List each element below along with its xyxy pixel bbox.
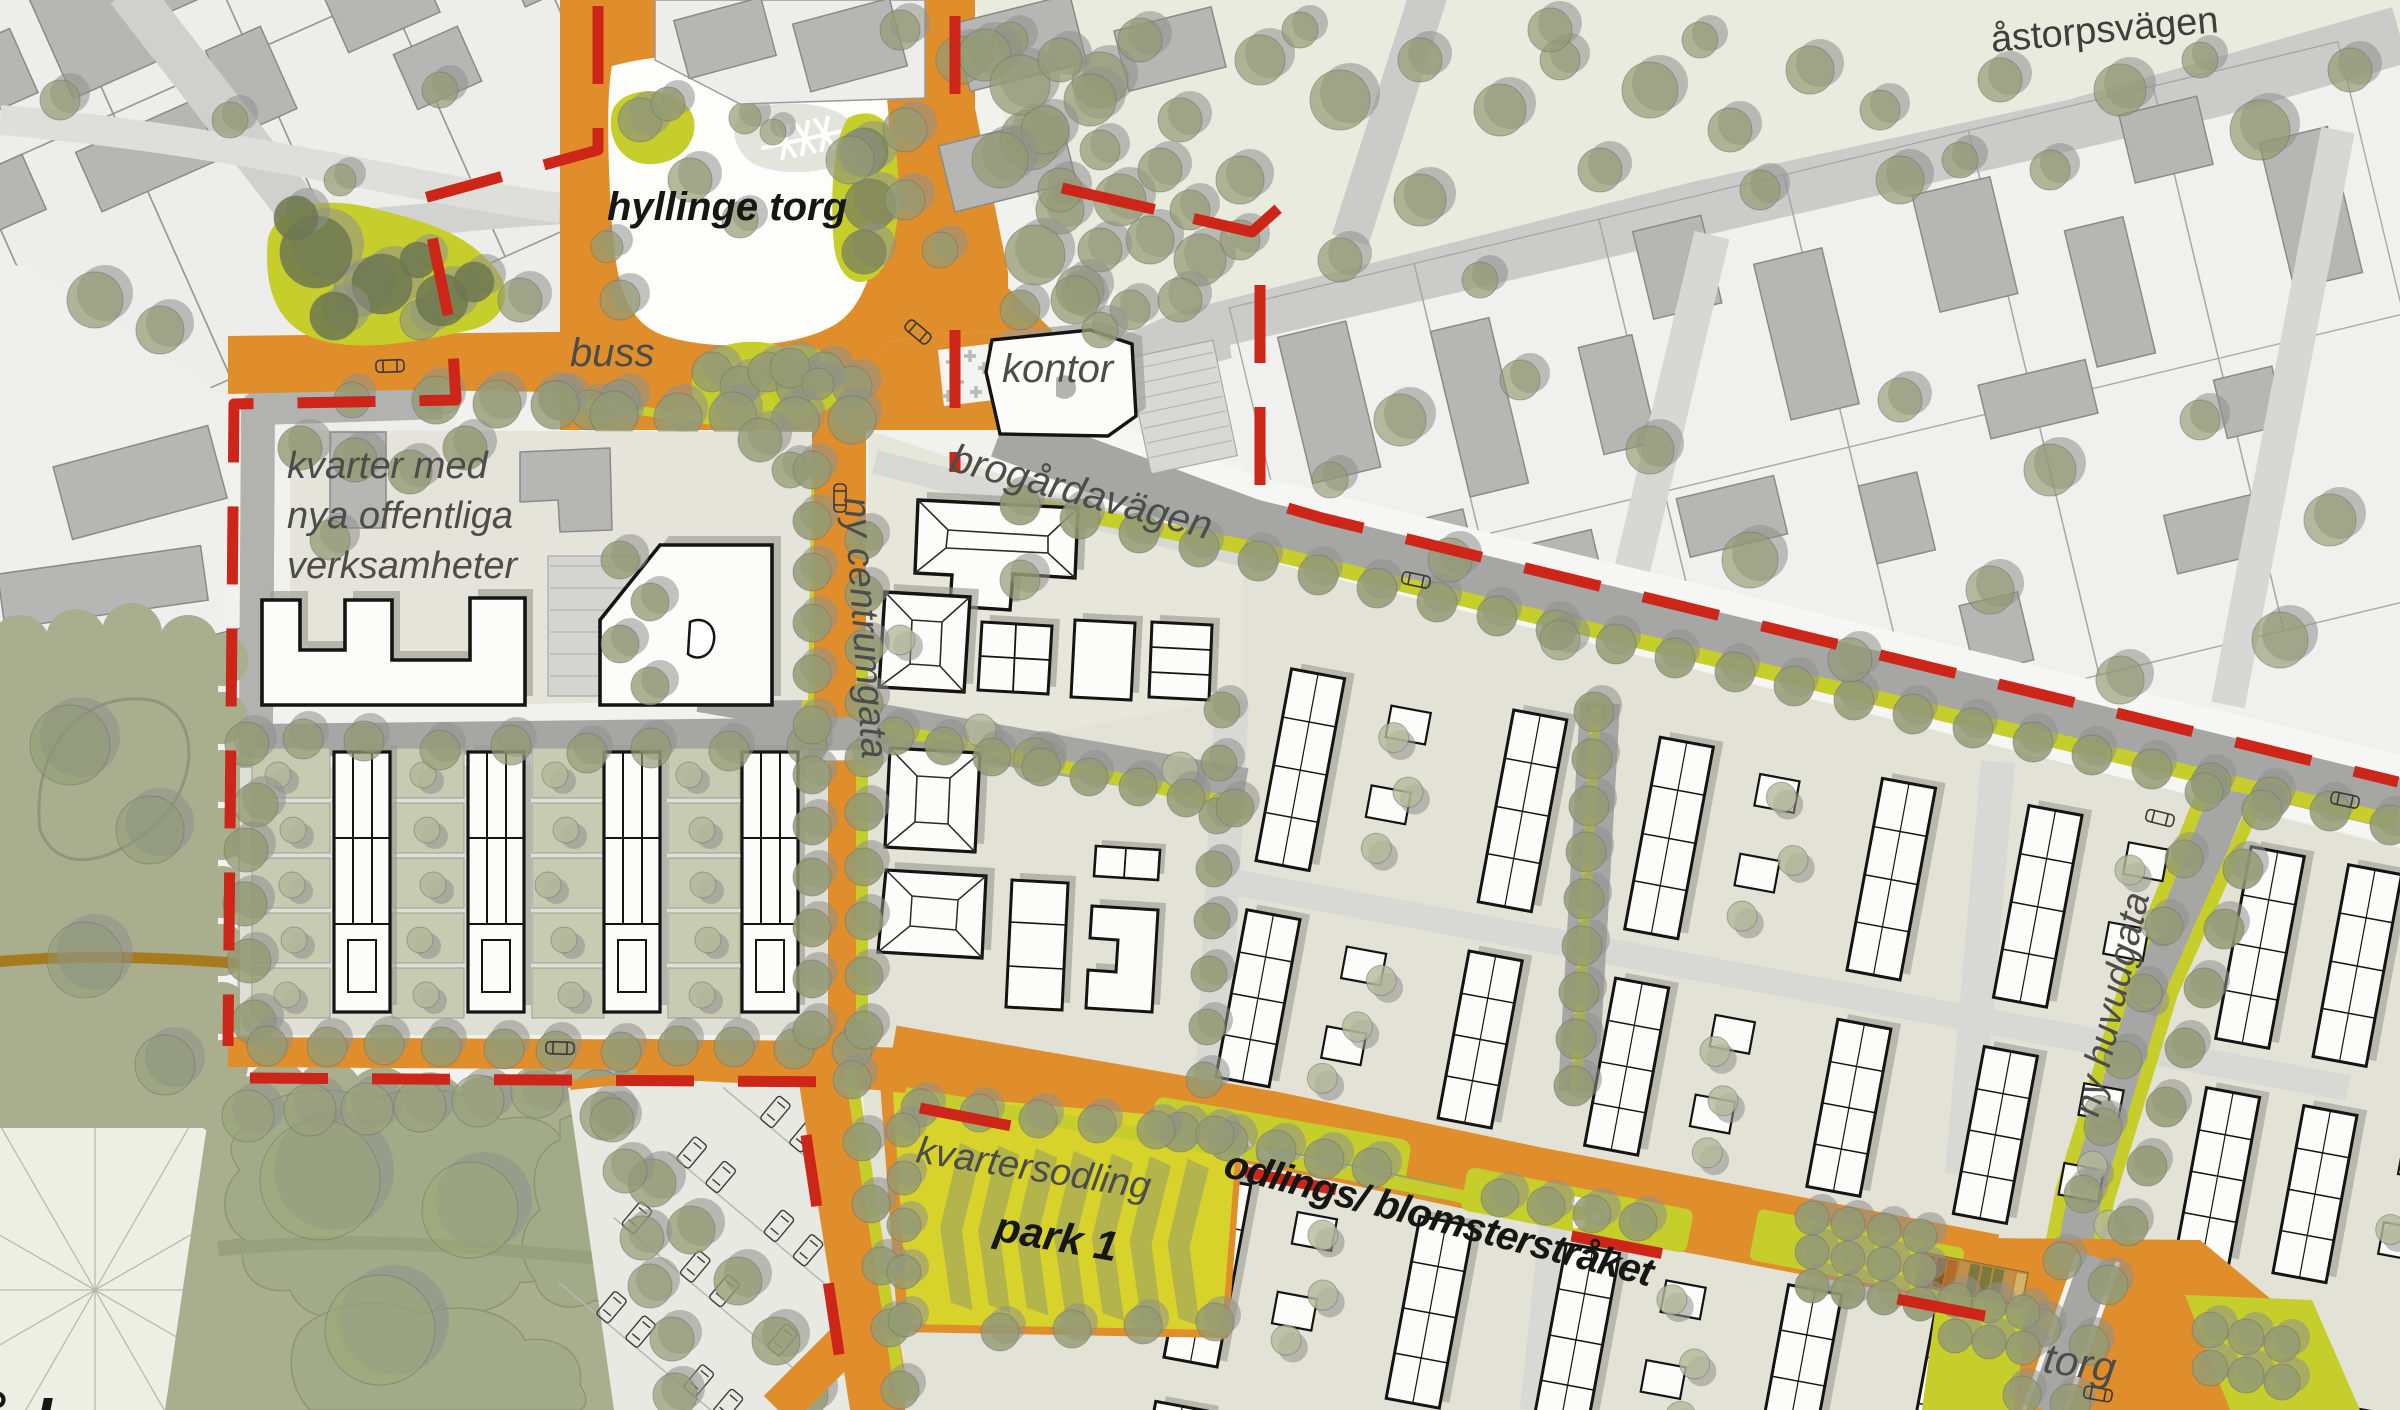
- svg-text:torg: torg: [2041, 1334, 2119, 1391]
- svg-text:kvarter med: kvarter med: [287, 445, 489, 487]
- svg-text:buss: buss: [570, 331, 655, 375]
- svg-text:hyllinge torg: hyllinge torg: [607, 185, 847, 229]
- svg-text:område: område: [0, 1386, 88, 1410]
- svg-text:kontor: kontor: [1002, 347, 1115, 391]
- svg-text:nya offentliga: nya offentliga: [287, 495, 513, 537]
- svg-text:verksamheter: verksamheter: [287, 545, 519, 587]
